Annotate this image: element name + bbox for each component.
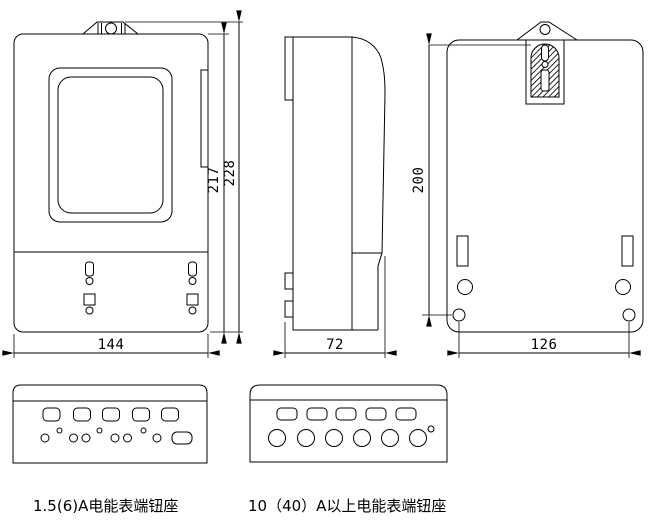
back-hole-lower-left (453, 309, 465, 321)
caption-large-terminal: 10（40）A以上电能表端钮座 (248, 497, 446, 515)
back-keyhole-slot-bottom (541, 70, 549, 91)
front-window-outer (49, 68, 172, 222)
front-window-inner (58, 77, 163, 213)
dim-label-front-width: 144 (98, 337, 125, 353)
caption-small-terminal: 1.5(6)A电能表端钮座 (33, 497, 178, 515)
front-body-outline (14, 34, 208, 332)
side-view (285, 37, 385, 330)
terminal-large-bottom-holes (269, 426, 435, 447)
dim-label-back-mount-width: 126 (531, 337, 558, 353)
front-screws-right (187, 262, 198, 314)
back-slot-right (622, 236, 633, 266)
side-cover-profile (352, 37, 385, 330)
back-view (447, 22, 643, 332)
back-keyhole-slot-top (542, 45, 549, 61)
front-screws-left (84, 262, 95, 314)
terminal-large-top-holes (277, 408, 416, 420)
back-hang-hole (540, 25, 550, 35)
terminal-small-top-holes (43, 408, 179, 421)
meter-dimension-drawing: 217 228 144 72 200 126 (0, 0, 663, 528)
dim-label-front-inner-height: 217 (206, 167, 222, 194)
front-side-strip (201, 70, 208, 167)
side-body-outline (293, 37, 378, 330)
back-hole-lower-right (623, 309, 635, 321)
dim-label-back-mount-height: 200 (411, 167, 427, 194)
back-hole-upper-left (458, 280, 473, 295)
front-hang-hole (106, 23, 117, 34)
back-hole-upper-right (616, 280, 631, 295)
back-slot-left (457, 236, 468, 266)
dim-label-front-total-height: 228 (222, 160, 238, 187)
front-view (14, 22, 208, 332)
side-tab-upper (285, 273, 293, 289)
terminal-large-outline (250, 385, 447, 462)
terminal-block-large (250, 385, 447, 462)
terminal-small-bottom-holes (41, 428, 192, 444)
side-flange (285, 37, 293, 100)
terminal-small-outline (13, 385, 207, 463)
dim-label-side-depth: 72 (326, 337, 344, 353)
back-keyhole-hole (542, 62, 548, 68)
side-tab-lower (285, 301, 293, 317)
terminal-block-small (13, 385, 207, 463)
